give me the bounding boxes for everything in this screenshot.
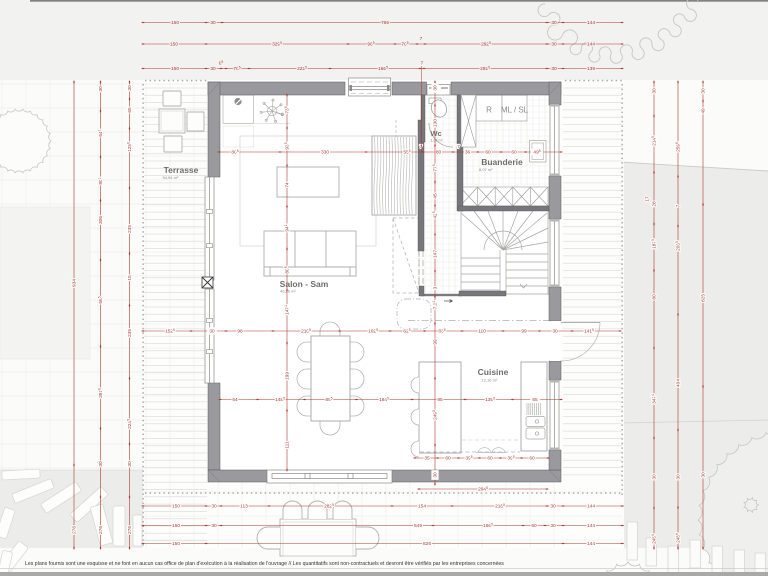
svg-text:7: 7 [420,36,423,42]
svg-text:99: 99 [521,329,527,335]
svg-text:8,07 m²: 8,07 m² [479,167,493,172]
svg-text:30: 30 [551,20,557,26]
svg-text:30: 30 [127,85,133,91]
svg-text:R: R [486,106,492,115]
svg-text:15: 15 [127,275,133,281]
svg-text:30: 30 [550,504,556,510]
svg-text:113: 113 [240,504,248,510]
svg-text:Wc: Wc [430,129,441,138]
svg-text:30: 30 [209,329,215,335]
svg-text:110: 110 [478,329,486,335]
svg-text:30: 30 [652,88,658,94]
svg-text:30: 30 [127,461,133,467]
svg-text:144: 144 [587,523,595,529]
svg-text:111: 111 [285,441,291,449]
svg-text:60: 60 [511,150,517,156]
svg-text:934: 934 [72,279,78,287]
svg-text:144: 144 [587,504,595,510]
svg-text:74: 74 [285,182,291,188]
svg-text:30: 30 [211,523,217,529]
svg-text:150: 150 [170,42,178,48]
svg-text:30: 30 [551,42,557,48]
svg-text:30: 30 [701,472,707,478]
svg-text:Les plans fournis sont une esq: Les plans fournis sont une esquisse et n… [25,561,504,567]
svg-text:35: 35 [424,456,430,462]
svg-text:60: 60 [445,456,451,462]
svg-text:28: 28 [652,201,658,207]
svg-text:144: 144 [587,20,595,26]
svg-text:3: 3 [433,286,439,289]
svg-text:549: 549 [414,523,422,529]
svg-text:150: 150 [171,20,179,26]
svg-text:154: 154 [418,504,426,510]
svg-text:199: 199 [285,372,291,380]
svg-text:276: 276 [72,526,78,534]
svg-text:30: 30 [98,461,104,467]
svg-text:404: 404 [676,379,682,387]
svg-text:17: 17 [645,196,651,202]
svg-text:1,04 m²: 1,04 m² [431,139,444,143]
svg-text:45: 45 [433,193,439,199]
svg-text:150: 150 [172,523,180,529]
svg-text:64: 64 [232,397,238,403]
svg-text:Cuisine: Cuisine [478,367,509,377]
svg-text:36: 36 [465,150,471,156]
svg-text:54,94 m²: 54,94 m² [163,175,179,180]
svg-text:40,26 m²: 40,26 m² [280,289,296,294]
svg-text:330: 330 [321,150,329,156]
svg-text:147: 147 [433,250,439,258]
svg-text:65: 65 [127,107,133,113]
svg-text:30: 30 [550,523,556,529]
svg-text:12,16 m²: 12,16 m² [482,378,498,383]
svg-text:30: 30 [551,66,557,72]
svg-text:150: 150 [172,541,180,547]
svg-text:30: 30 [676,474,682,480]
svg-text:150: 150 [171,66,179,72]
svg-text:60: 60 [485,150,491,156]
svg-text:30: 30 [552,329,558,335]
svg-text:235: 235 [127,225,133,233]
svg-text:276: 276 [127,526,133,534]
svg-text:30: 30 [433,85,439,91]
svg-text:60: 60 [487,456,493,462]
svg-text:306: 306 [98,216,104,224]
svg-text:Buanderie: Buanderie [481,157,523,167]
svg-text:30: 30 [210,20,216,26]
svg-text:139: 139 [587,66,595,72]
svg-text:7: 7 [676,204,682,207]
svg-text:49: 49 [701,108,707,114]
svg-text:7: 7 [457,144,460,150]
svg-text:95: 95 [437,397,443,403]
svg-text:826: 826 [423,541,431,547]
svg-text:80: 80 [652,294,658,300]
svg-text:7: 7 [421,61,424,67]
svg-text:276: 276 [98,526,104,534]
svg-text:130: 130 [433,119,439,127]
svg-text:ML / SL: ML / SL [501,106,529,115]
svg-text:144: 144 [587,541,595,547]
svg-text:99: 99 [433,339,439,345]
svg-text:30: 30 [210,66,216,72]
svg-text:30: 30 [211,504,217,510]
svg-text:60: 60 [529,456,535,462]
svg-text:144: 144 [587,42,595,48]
svg-text:150: 150 [172,504,180,510]
svg-text:766: 766 [381,20,389,26]
svg-text:235: 235 [127,329,133,337]
svg-text:30: 30 [433,472,439,478]
svg-text:30: 30 [652,474,658,480]
svg-text:65: 65 [532,397,538,403]
svg-text:7: 7 [420,144,423,150]
svg-text:Terrasse: Terrasse [164,165,199,175]
svg-text:60: 60 [531,523,537,529]
svg-text:30: 30 [701,88,707,94]
svg-text:80: 80 [436,150,442,156]
svg-text:825: 825 [701,294,707,302]
svg-text:30: 30 [98,86,104,92]
svg-text:98: 98 [237,329,243,335]
